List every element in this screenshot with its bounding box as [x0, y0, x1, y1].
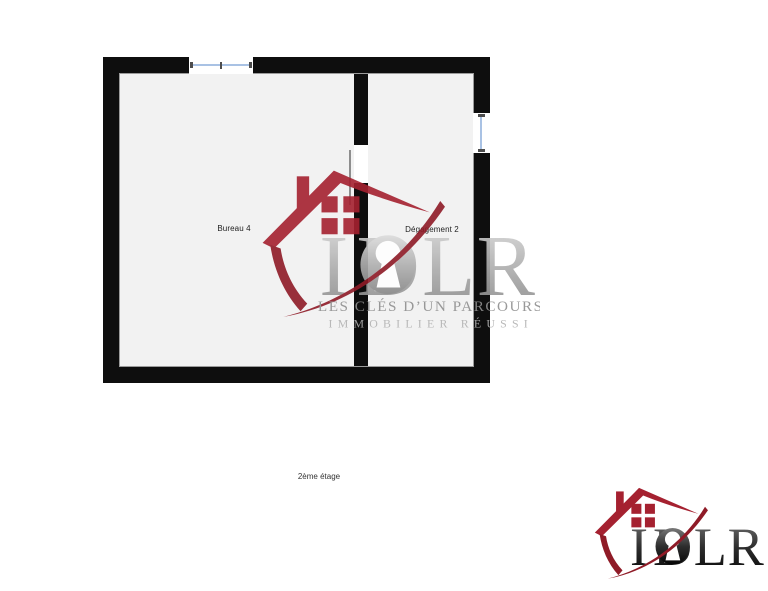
logo-tagline-1: LES CLÉS D’UN PARCOURS: [318, 298, 540, 315]
window-end-cap: [478, 114, 485, 117]
window-end-cap: [249, 62, 252, 68]
logo-tagline-2: IMMOBILIER RÉUSSI: [329, 316, 533, 330]
window-end-cap: [190, 62, 193, 68]
wall-top: [103, 57, 490, 74]
idlr-corner-logo: I D L R: [590, 482, 767, 591]
floor-caption: 2ème étage: [271, 472, 367, 481]
window-top: [189, 57, 253, 74]
window-right: [473, 113, 490, 153]
window-glass-line: [480, 116, 482, 150]
logo-letter-r: R: [728, 517, 765, 577]
window-end-cap: [478, 149, 485, 152]
logo-letter-l: L: [694, 517, 727, 577]
house-wall-swoosh: [600, 534, 623, 575]
wall-left: [103, 57, 119, 383]
idlr-watermark-logo: I D L R LES CLÉS D’UN PARCOURS IMMOBILIE…: [255, 161, 540, 337]
window-mid-post: [220, 62, 222, 69]
wall-bottom: [103, 366, 490, 383]
floorplan-page: { "colors": { "page-bg": "#ffffff", "wal…: [0, 0, 768, 576]
house-wall-swoosh: [270, 245, 307, 312]
